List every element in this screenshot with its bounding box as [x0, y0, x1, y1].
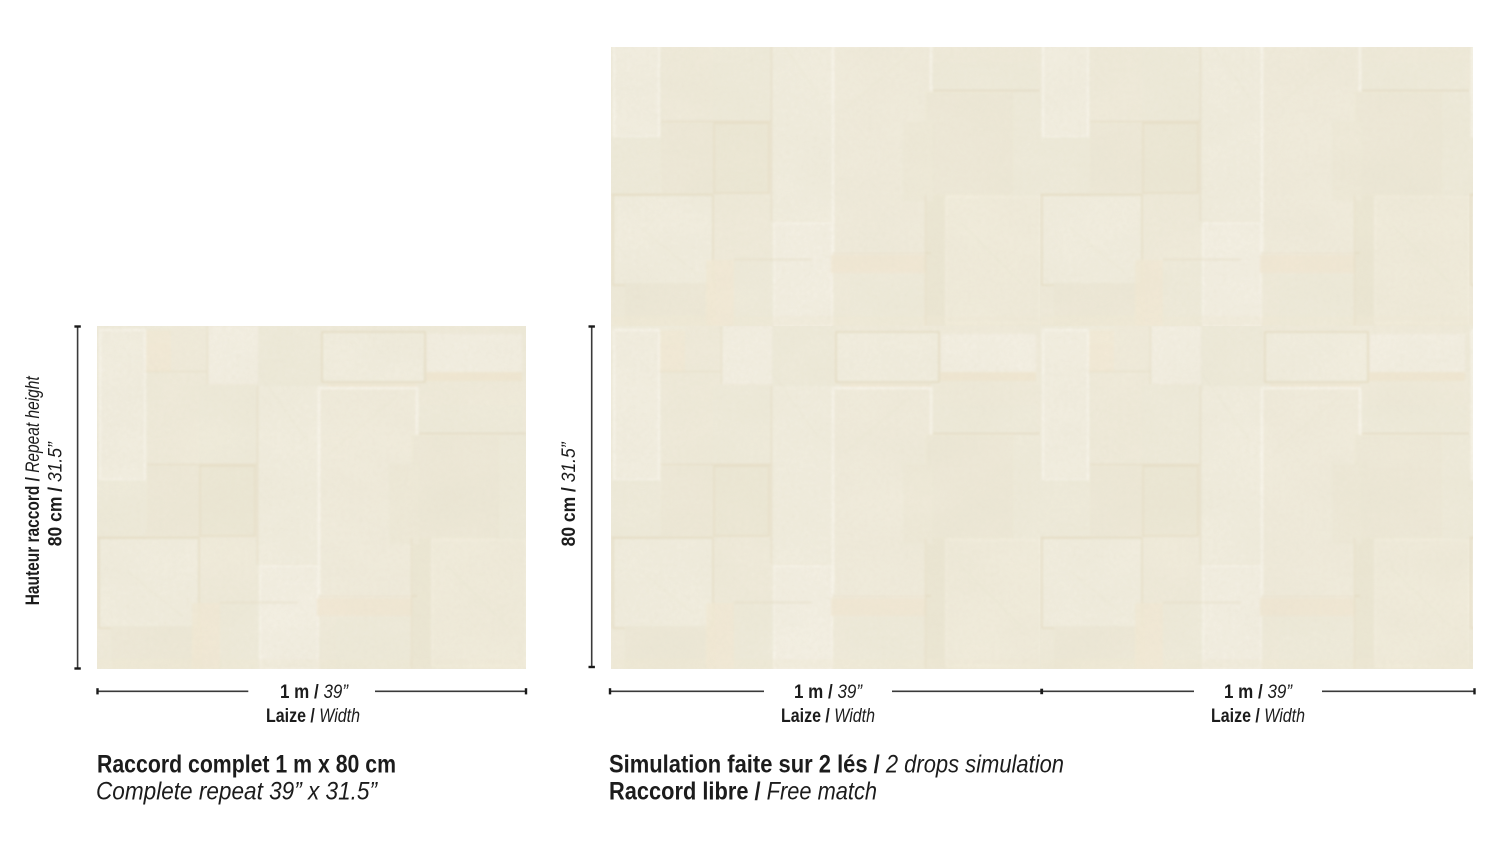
- svg-text:Laize / Width: Laize / Width: [781, 706, 875, 727]
- svg-text:Complete repeat 39” x 31.5”: Complete repeat 39” x 31.5”: [96, 777, 379, 805]
- svg-text:1 m / 39”: 1 m / 39”: [1224, 682, 1293, 703]
- svg-text:80 cm / 31.5”: 80 cm / 31.5”: [46, 441, 67, 547]
- svg-text:Laize / Width: Laize / Width: [1211, 706, 1305, 727]
- svg-text:1 m / 39”: 1 m / 39”: [280, 682, 349, 703]
- svg-text:Laize / Width: Laize / Width: [266, 706, 360, 727]
- svg-text:80 cm / 31.5”: 80 cm / 31.5”: [559, 441, 580, 547]
- svg-text:1 m / 39”: 1 m / 39”: [794, 682, 863, 703]
- svg-text:Raccord complet 1 m x 80 cm: Raccord complet 1 m x 80 cm: [97, 751, 396, 779]
- svg-text:Hauteur raccord / Repeat heigh: Hauteur raccord / Repeat height: [23, 376, 44, 606]
- svg-text:Raccord libre / Free match: Raccord libre / Free match: [609, 777, 877, 805]
- svg-text:Simulation faite sur 2 lés / 2: Simulation faite sur 2 lés / 2 drops sim…: [609, 751, 1064, 779]
